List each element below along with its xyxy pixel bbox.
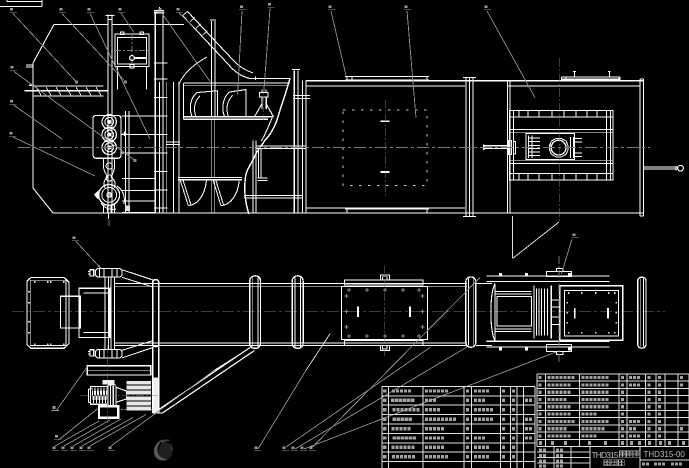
svg-text:THD315-00: THD315-00 [644,450,686,459]
svg-text:THD315: THD315 [592,450,619,460]
